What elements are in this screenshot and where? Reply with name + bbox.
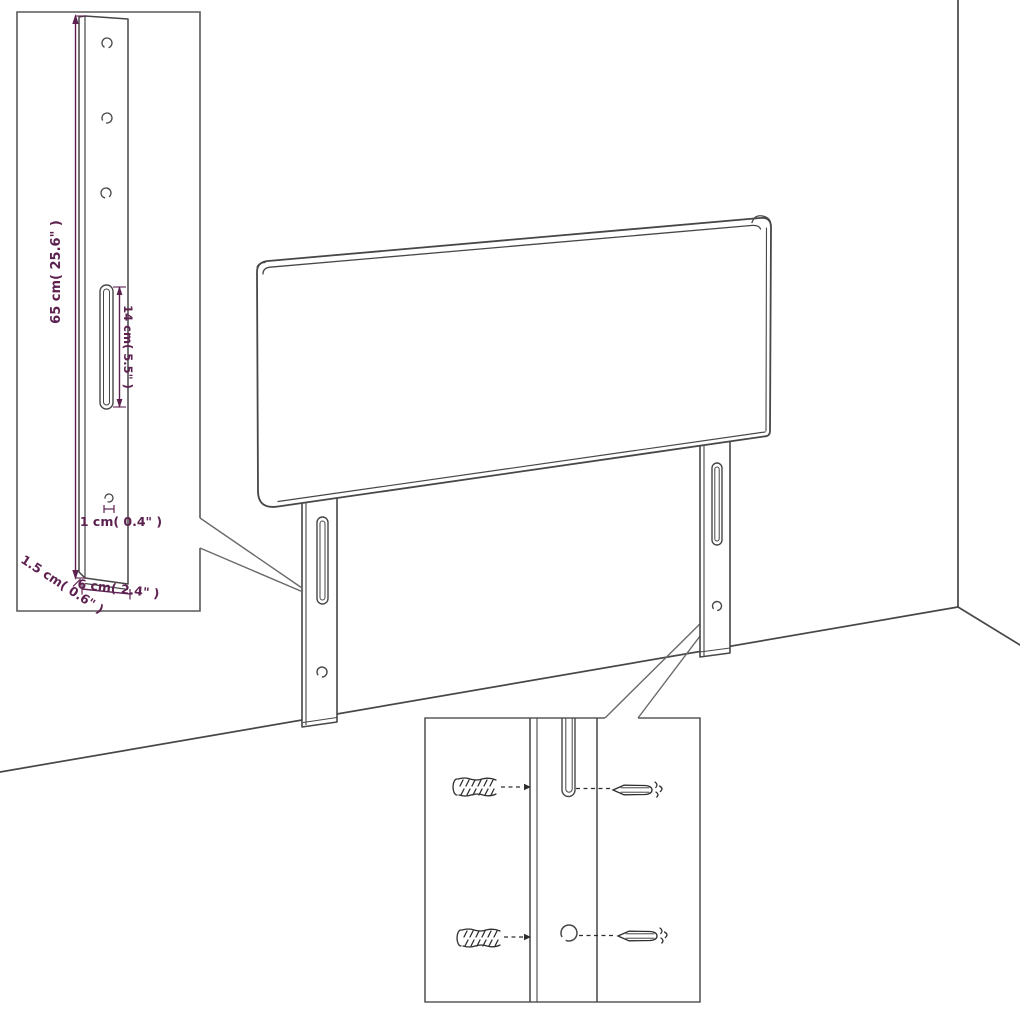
headboard-panel xyxy=(257,216,771,507)
slot-length-dimension-label: 14 cm( 5.5" ) xyxy=(121,305,135,389)
callout-lines-left xyxy=(200,518,303,592)
assembly-diagram-svg: 65 cm( 25.6" ) 14 cm( 5.5" ) 1 cm( 0.4" … xyxy=(0,0,1020,1020)
assembly-diagram-page: 65 cm( 25.6" ) 14 cm( 5.5" ) 1 cm( 0.4" … xyxy=(0,0,1020,1020)
detail-inset-mounting xyxy=(425,718,700,1002)
hole-dimension-label: 1 cm( 0.4" ) xyxy=(80,514,162,529)
detail-inset-leg: 65 cm( 25.6" ) 14 cm( 5.5" ) 1 cm( 0.4" … xyxy=(17,12,200,617)
left-leg xyxy=(302,491,337,727)
height-dimension-label: 65 cm( 25.6" ) xyxy=(49,220,64,324)
headboard-right-edge-inner xyxy=(766,228,767,431)
right-leg xyxy=(700,437,730,657)
bracket-drawing xyxy=(79,16,128,590)
floor-line-right xyxy=(958,607,1020,645)
